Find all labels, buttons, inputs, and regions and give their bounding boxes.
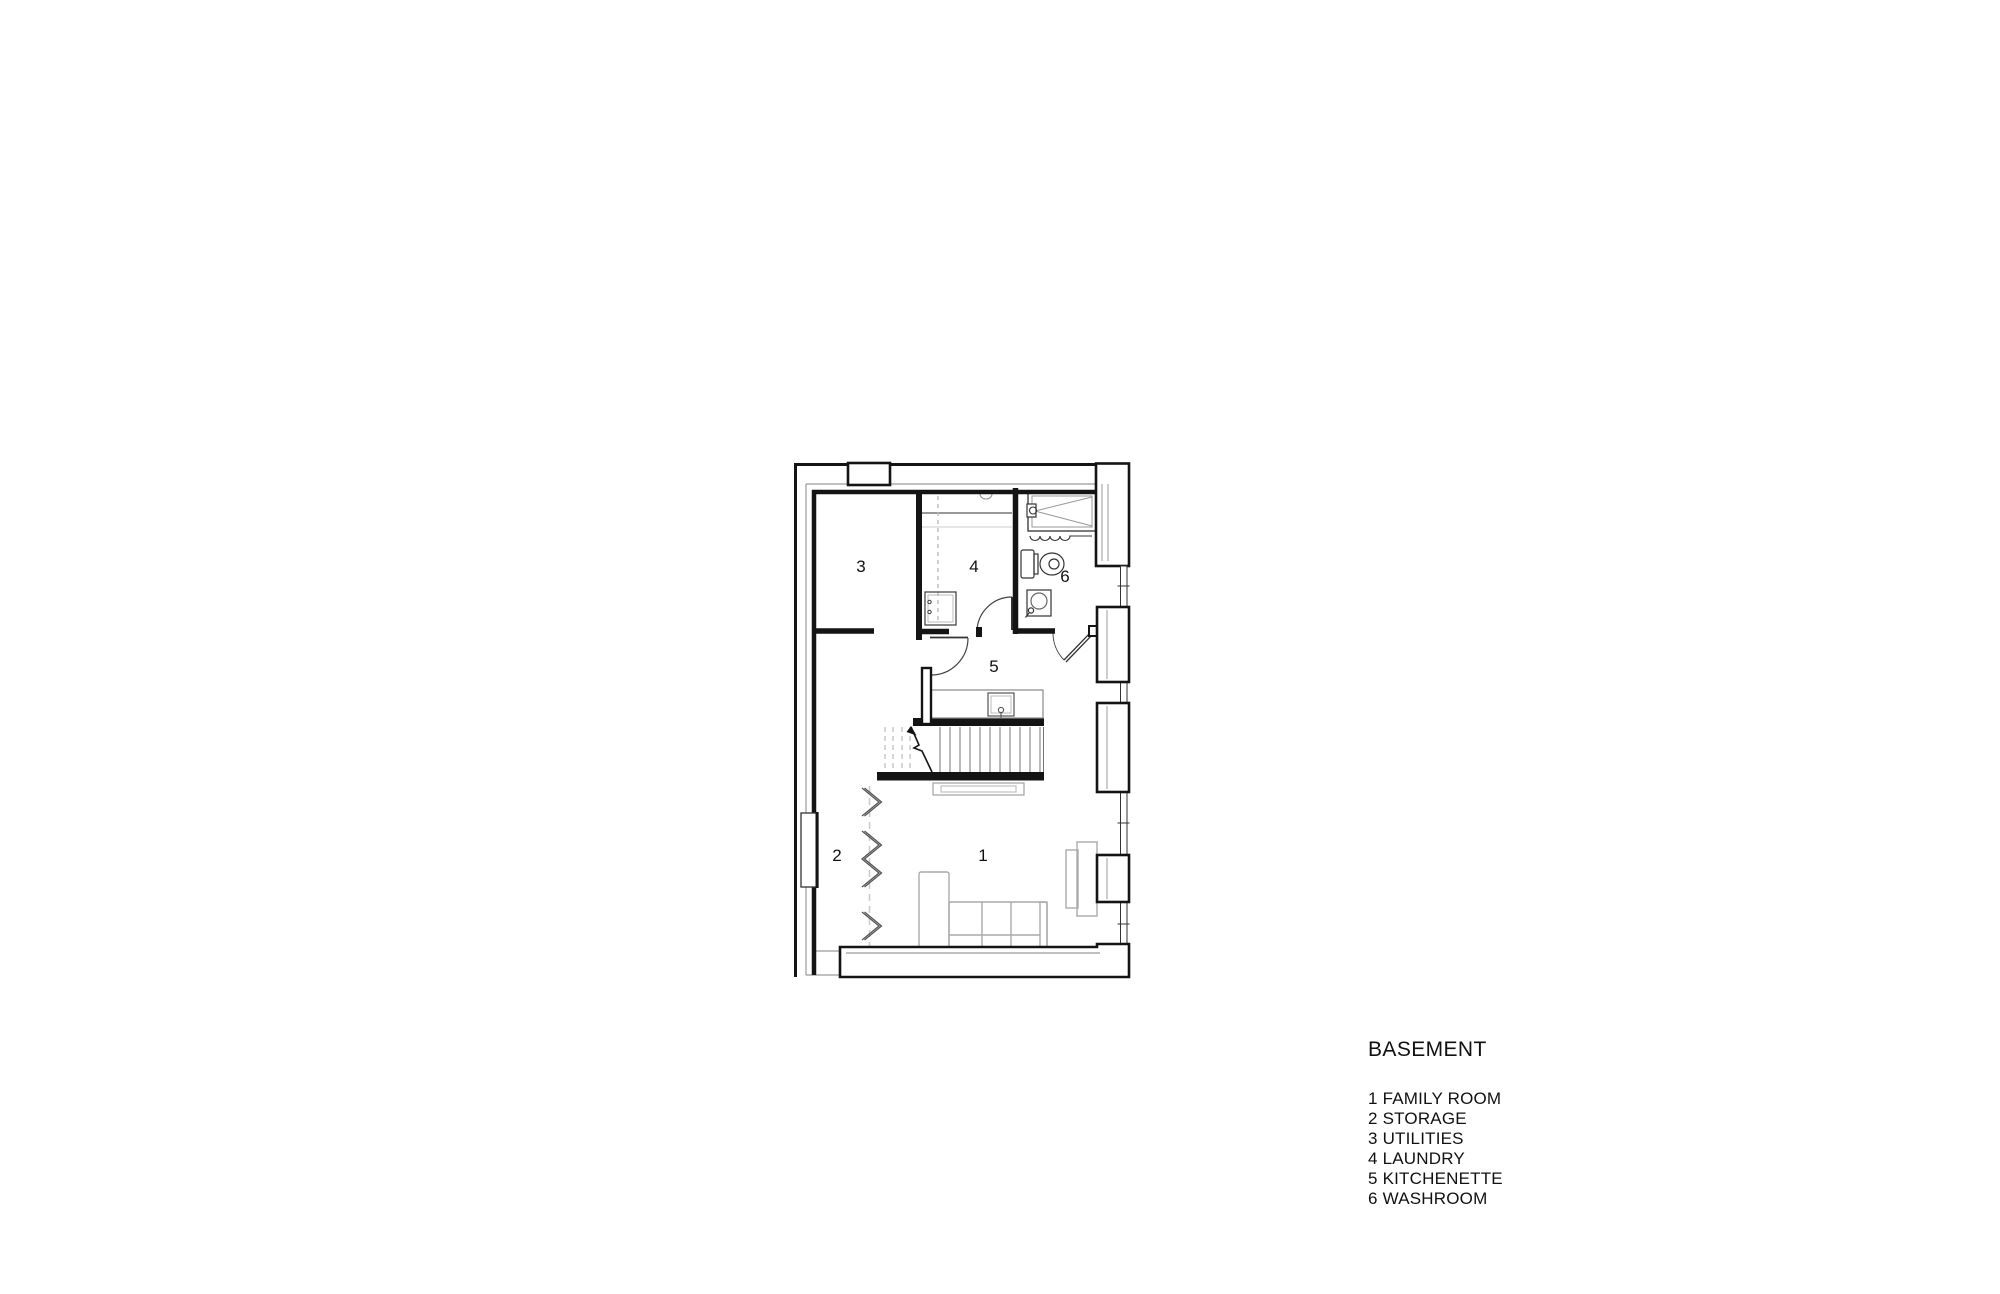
legend-items: 1 FAMILY ROOM 2 STORAGE 3 UTILITIES 4 LA… [1368,1089,1503,1209]
legend-item-storage: 2 STORAGE [1368,1109,1503,1129]
bottom-wall [840,944,1129,977]
laundry-sink [925,592,956,625]
room-label-storage: 2 [832,846,841,865]
washroom-sink [1026,590,1052,618]
storage-divider [862,786,882,946]
laundry-fixtures [921,494,1012,625]
legend-item-family-room: 1 FAMILY ROOM [1368,1089,1503,1109]
room-label-utilities: 3 [856,557,865,576]
storage-wall-window [801,813,818,887]
shower-curtain [1030,536,1092,541]
room-label-family-room: 1 [978,846,987,865]
washroom-door [1053,632,1093,662]
room-label-laundry: 4 [969,557,978,576]
stair-direction-arrow [907,726,917,736]
stair-wall-stub [922,668,931,724]
legend-item-washroom: 6 WASHROOM [1368,1189,1503,1209]
legend-item-utilities: 3 UTILITIES [1368,1129,1503,1149]
doors [930,597,1093,675]
shower-head [1027,504,1036,517]
legend-item-laundry: 4 LAUNDRY [1368,1149,1503,1169]
understair-shelf [933,783,1024,795]
floor-plan: 1 2 3 4 5 6 [0,0,2000,1294]
kitchenette-counter [929,690,1043,718]
family-room-furniture [919,842,1097,947]
room-label-kitchenette: 5 [989,657,998,676]
stair-treads [940,727,1040,772]
washroom-outer-wall [1096,464,1129,567]
stair-guard-upper [913,718,1044,726]
stairs [877,718,1044,795]
shower [1027,492,1096,541]
laundry-door [977,597,1012,631]
right-facade [1089,464,1130,948]
sofa [919,872,1047,947]
legend-title: BASEMENT [1368,1038,1503,1062]
media-console [1066,842,1097,916]
toilet [1021,550,1064,578]
wall-piers [1097,607,1129,902]
kitchenette-door [930,638,968,676]
stair-guard-lower [877,772,1044,781]
interior-walls [812,488,1055,724]
wall-notch [848,463,890,485]
legend-item-kitchenette: 5 KITCHENETTE [1368,1169,1503,1189]
legend: BASEMENT 1 FAMILY ROOM 2 STORAGE 3 UTILI… [1368,1038,1503,1209]
room-label-washroom: 6 [1060,567,1069,586]
washroom-fixtures [1021,492,1096,618]
